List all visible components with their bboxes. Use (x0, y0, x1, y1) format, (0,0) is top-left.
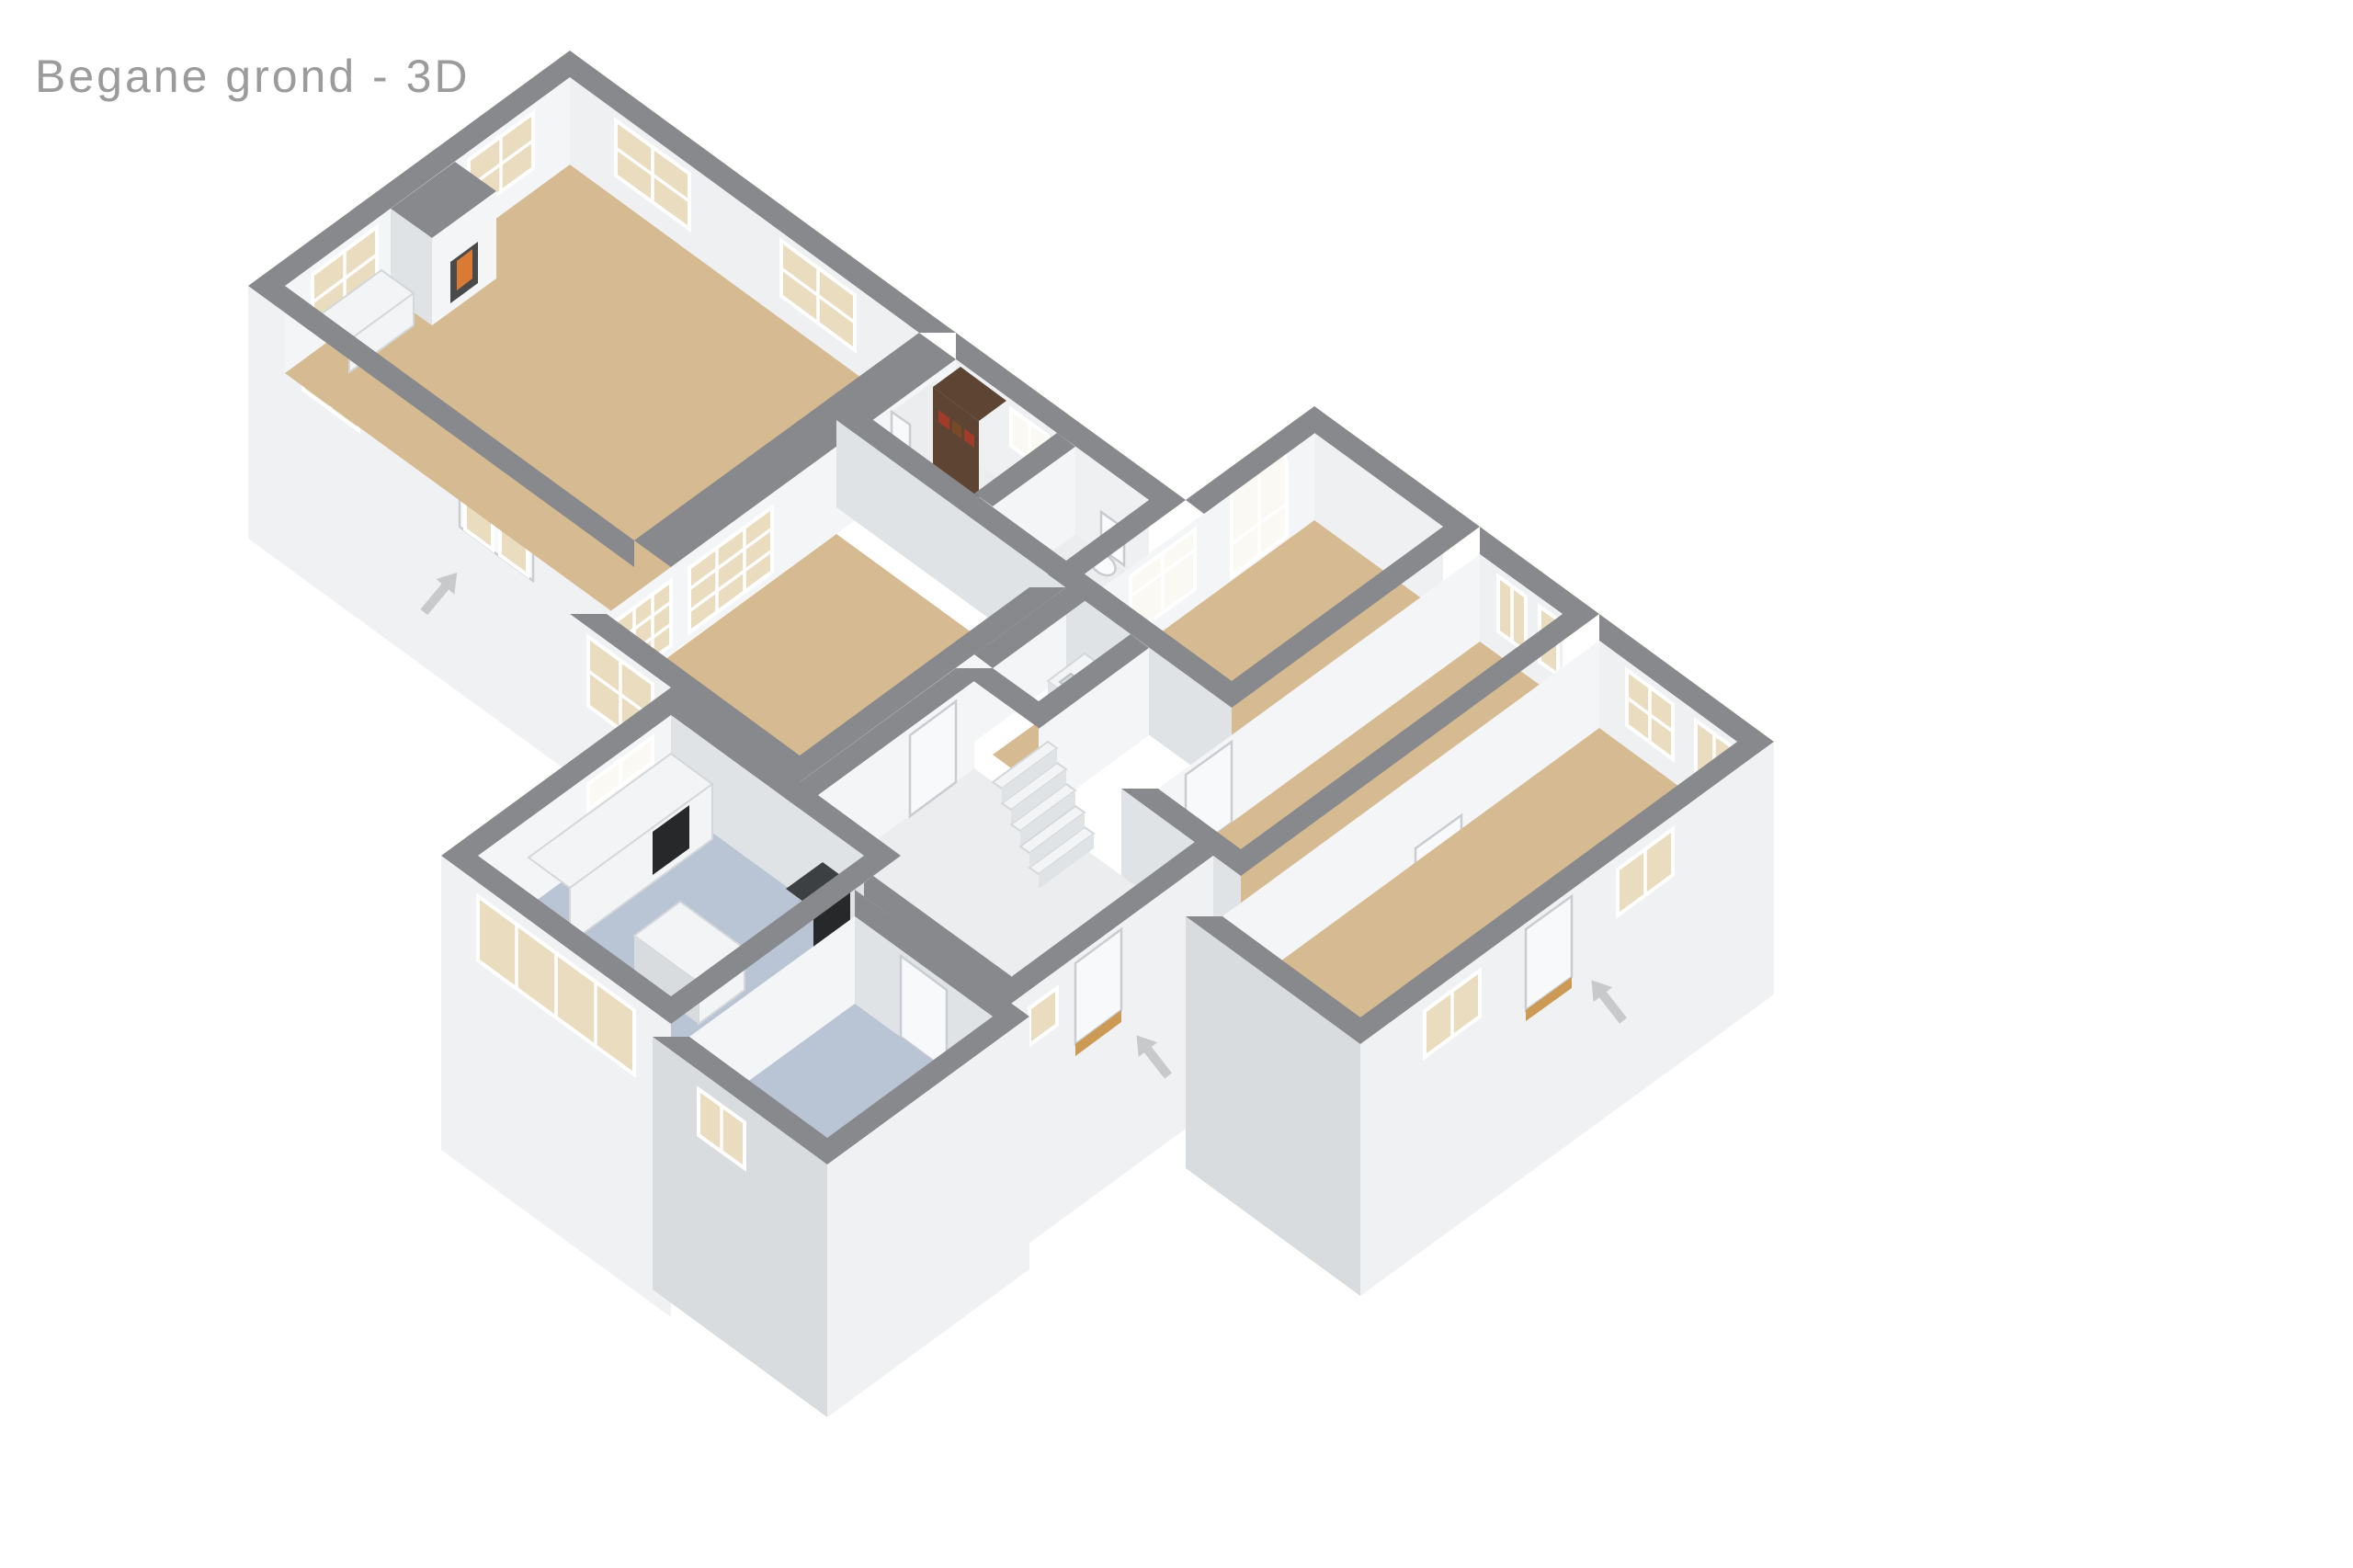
page-title: Begane grond - 3D (35, 51, 471, 102)
floorplan-3d-view: Begane grond - 3D (0, 0, 2353, 1568)
floorplan-page: Begane grond - 3D (0, 0, 2353, 1568)
